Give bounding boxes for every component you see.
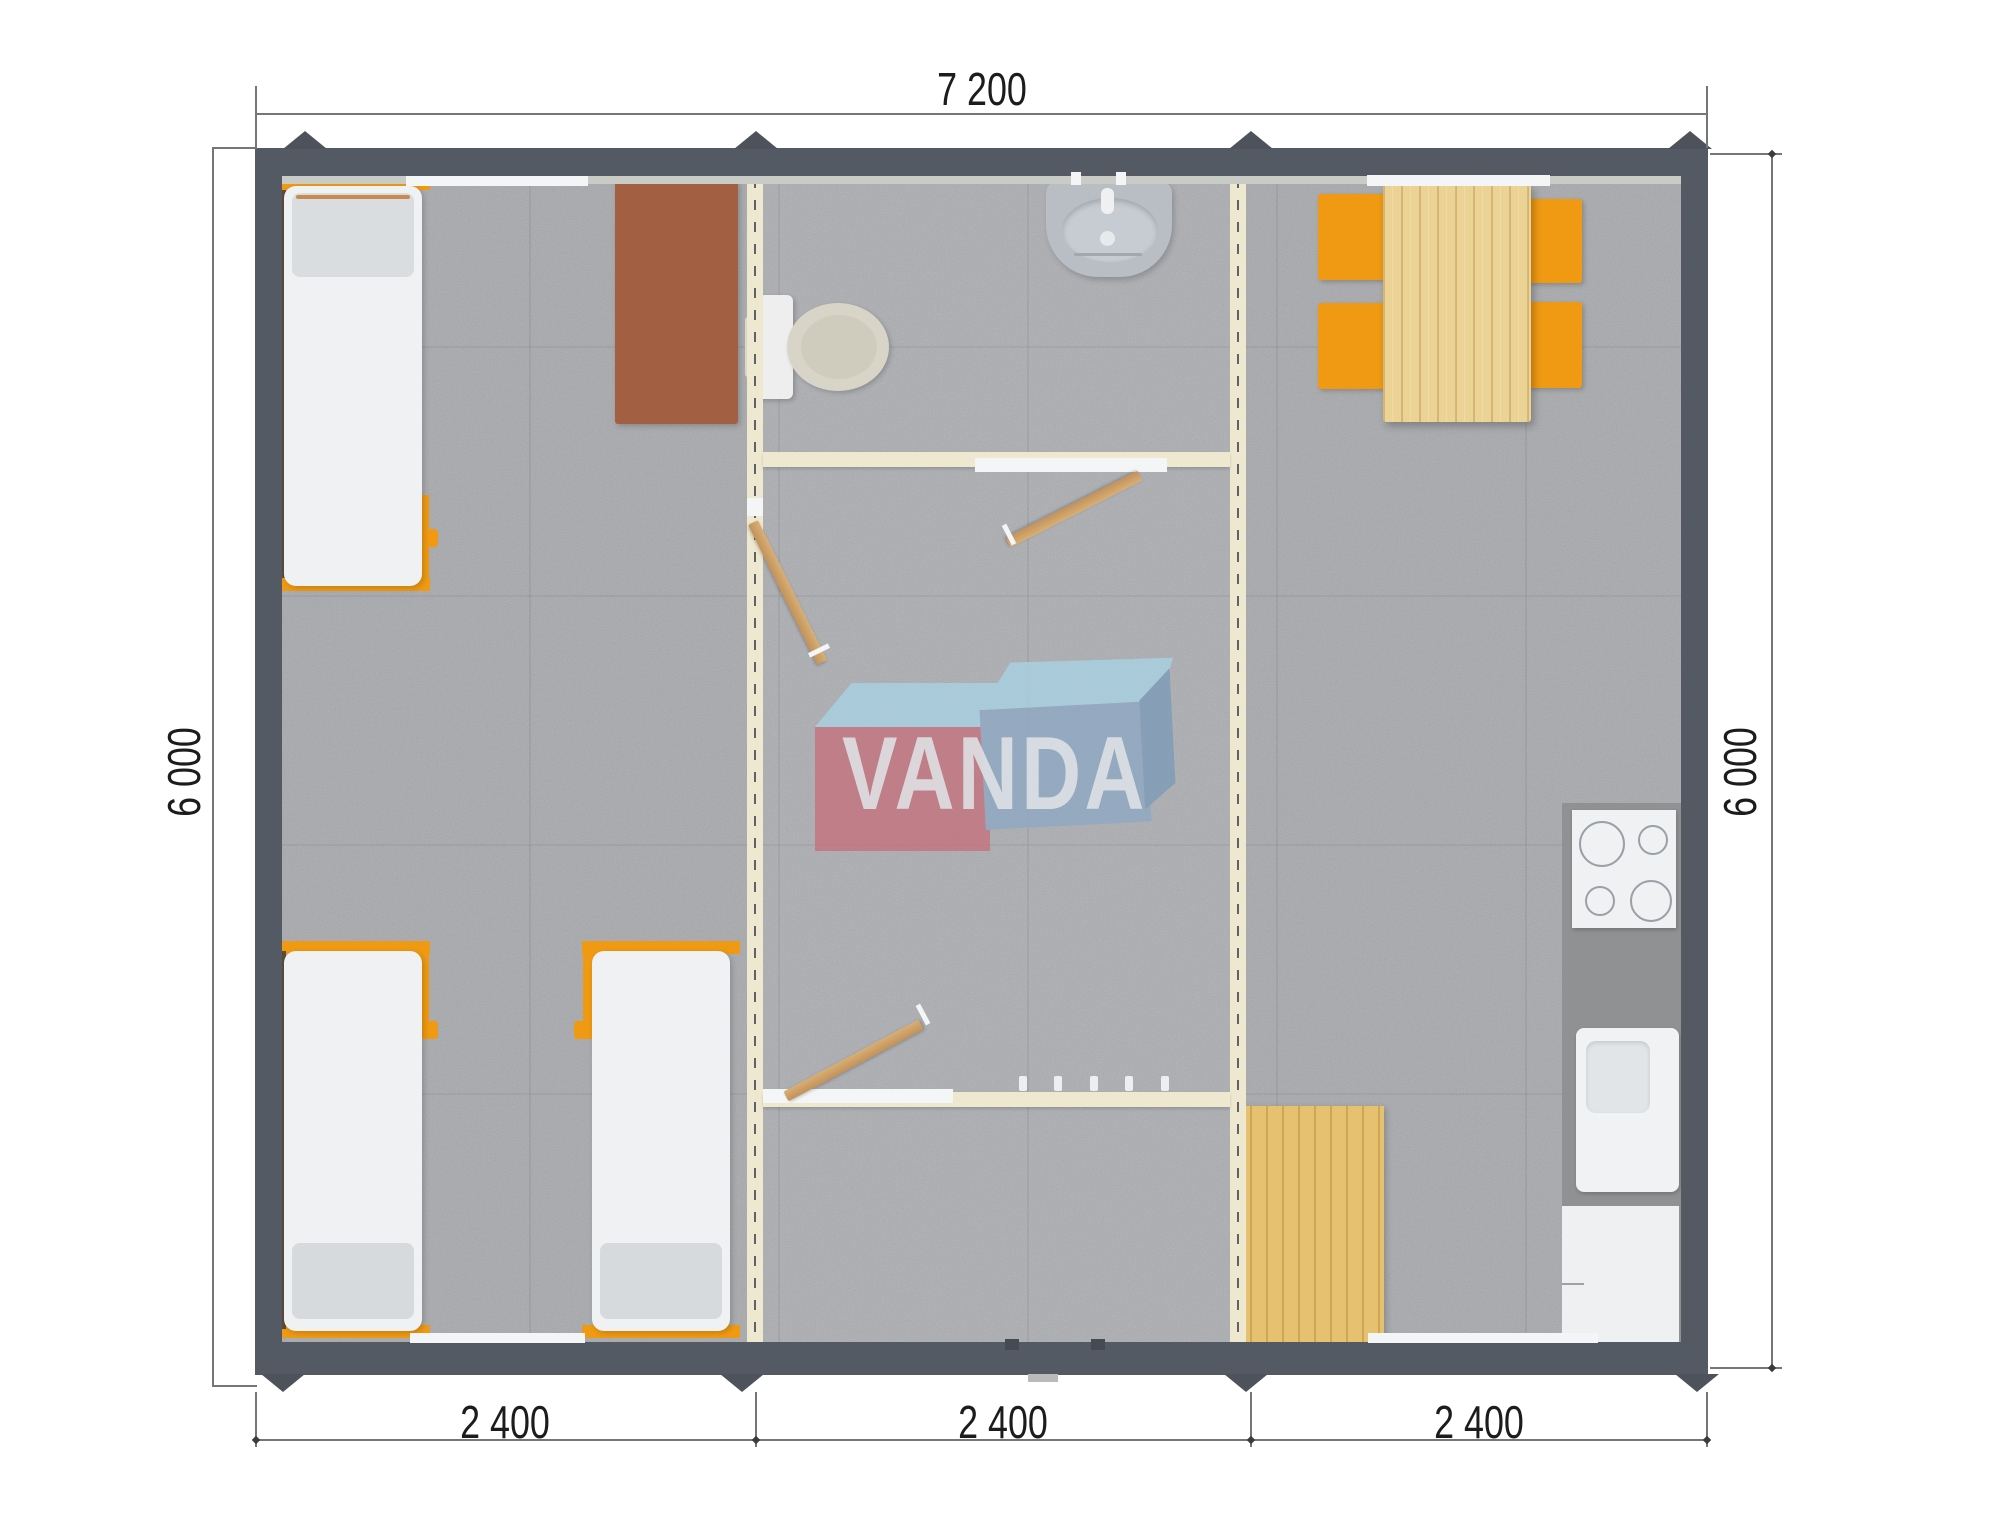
- partition-wall: [747, 178, 763, 1342]
- outer-wall-right: [1681, 148, 1708, 1375]
- dimension-label-left: 6 000: [157, 710, 211, 835]
- window: [1367, 175, 1550, 186]
- coat-hook: [1090, 1076, 1098, 1091]
- lifting-lug: [261, 1374, 305, 1392]
- partition-door-gap: [747, 498, 763, 516]
- chair: [1318, 194, 1386, 280]
- logo-text: VANDA: [842, 722, 1148, 826]
- faucet-icon: [1101, 188, 1114, 214]
- tick: [1703, 1436, 1711, 1444]
- floor-mat: [1234, 1106, 1384, 1342]
- outer-wall-left: [255, 148, 282, 1375]
- lifting-lug: [283, 131, 327, 149]
- lifting-lug: [1224, 1374, 1268, 1392]
- dimension-label-bottom: 2 400: [1417, 1395, 1542, 1449]
- outer-wall-top: [255, 148, 1708, 178]
- coat-hook: [1054, 1076, 1062, 1091]
- pillow: [292, 193, 414, 277]
- window: [1368, 1333, 1598, 1343]
- entry-threshold: [1028, 1374, 1058, 1382]
- lifting-lug: [1675, 1374, 1719, 1392]
- pillow: [292, 1243, 414, 1319]
- window: [410, 1333, 585, 1343]
- lifting-lug: [720, 1374, 764, 1392]
- kitchen-sink: [1576, 1028, 1679, 1192]
- bathroom-door-panel: [975, 458, 1167, 472]
- washbasin: [1046, 181, 1172, 277]
- bed: [582, 941, 740, 1338]
- coat-hook: [1125, 1076, 1133, 1091]
- lifting-lug: [1229, 131, 1273, 149]
- coat-hook: [1019, 1076, 1027, 1091]
- lifting-lug: [734, 131, 778, 149]
- bed: [272, 177, 430, 593]
- bed: [272, 941, 430, 1338]
- floor-plan: VANDA: [0, 0, 2000, 1537]
- base-cabinet: [1562, 1206, 1679, 1342]
- dimension-line-right: [1771, 153, 1773, 1369]
- coat-hook: [1161, 1076, 1169, 1091]
- tick: [252, 1436, 260, 1444]
- dimension-label-right: 6 000: [1713, 710, 1767, 835]
- chair: [1528, 199, 1582, 283]
- chair: [1318, 303, 1386, 389]
- burner-icon: [1579, 821, 1625, 867]
- tick: [1247, 1436, 1255, 1444]
- dimension-label-bottom: 2 400: [443, 1395, 568, 1449]
- extension-line: [212, 1385, 257, 1387]
- chair: [1528, 302, 1582, 388]
- window: [406, 176, 588, 186]
- wall-tick: [1071, 172, 1081, 185]
- dimension-label-bottom: 2 400: [941, 1395, 1066, 1449]
- burner-icon: [1638, 825, 1668, 855]
- extension-line: [1706, 86, 1708, 148]
- extension-line: [255, 86, 257, 148]
- dimension-label-top: 7 200: [920, 62, 1045, 116]
- burner-icon: [1630, 880, 1672, 922]
- toilet: [745, 295, 895, 401]
- extension-line: [212, 147, 257, 149]
- dining-table: [1383, 184, 1531, 422]
- burner-icon: [1585, 886, 1615, 916]
- desk: [615, 181, 738, 424]
- entry-door-marks: [1005, 1339, 1019, 1350]
- tick: [1768, 150, 1776, 158]
- entry-door-marks: [1091, 1339, 1105, 1350]
- wall-tick: [1116, 172, 1126, 185]
- cooktop: [1572, 810, 1676, 928]
- partition-wall: [1230, 178, 1246, 1342]
- dimension-line-left: [212, 148, 214, 1387]
- pillow: [600, 1243, 722, 1319]
- outer-wall-bottom: [255, 1342, 1708, 1375]
- tick: [1768, 1364, 1776, 1372]
- tick: [752, 1436, 760, 1444]
